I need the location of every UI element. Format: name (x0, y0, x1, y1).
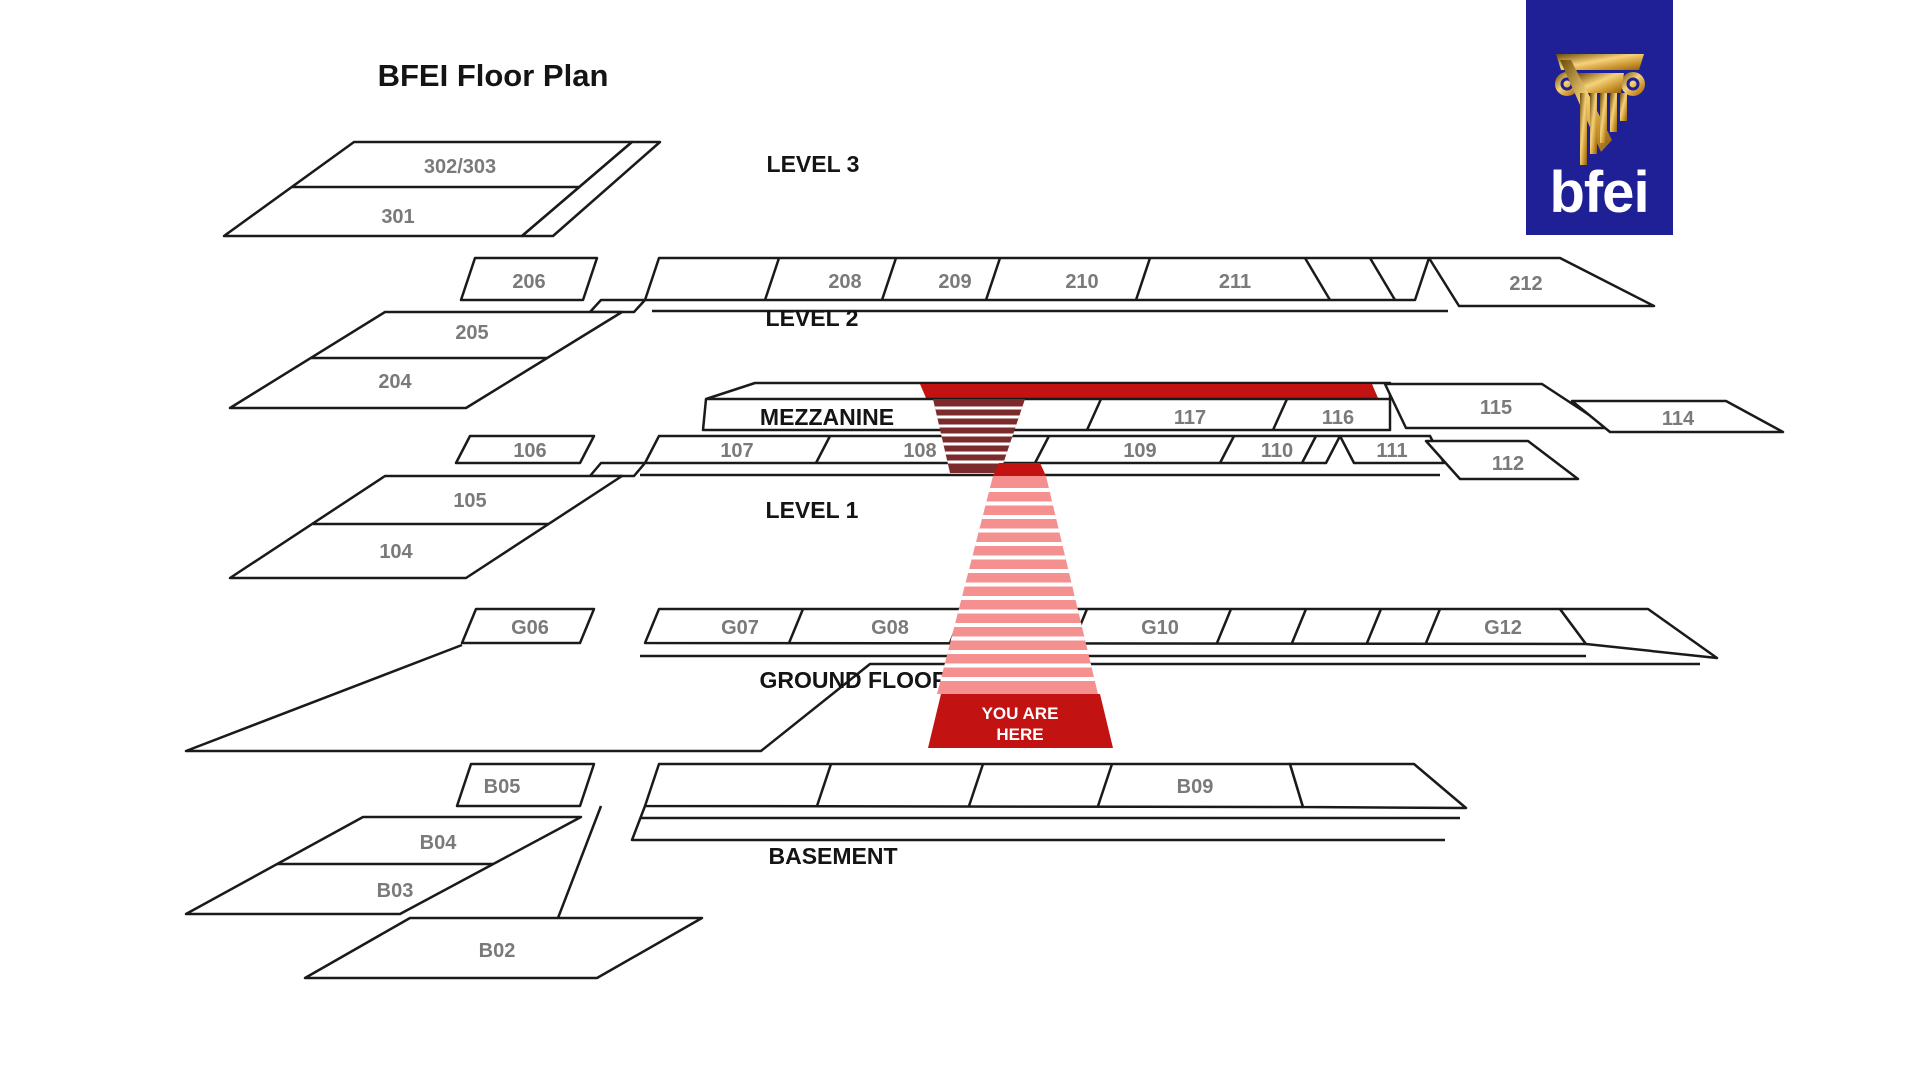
room-label-208: 208 (828, 271, 861, 293)
room-label-G10: G10 (1141, 617, 1179, 639)
basement-label: BASEMENT (768, 843, 897, 869)
room-label-204: 204 (378, 371, 412, 393)
room-label-B05: B05 (484, 776, 521, 798)
level2-label: LEVEL 2 (766, 305, 859, 331)
room-label-212: 212 (1509, 273, 1542, 295)
level-1-floor: 106 107 108 109 110 111 112 105 104 LEVE… (230, 436, 1578, 578)
mezzanine-red-corridor (920, 384, 1378, 398)
room-label-110: 110 (1261, 440, 1293, 462)
level-3-floor: 302/303 301 LEVEL 3 (224, 142, 859, 236)
ground-floor-label: GROUND FLOOR (759, 667, 948, 693)
room-label-B03: B03 (377, 880, 414, 902)
room-label-106: 106 (513, 440, 546, 462)
basement-floor: B05 B09 B04 B03 B02 BASEMENT (186, 764, 1466, 978)
room-label-111: 111 (1376, 440, 1407, 462)
room-label-209: 209 (938, 271, 971, 293)
room-label-112: 112 (1492, 453, 1524, 475)
room-label-115: 115 (1480, 397, 1512, 419)
room-label-B09: B09 (1177, 776, 1214, 798)
floor-plan-drawing: 302/303 301 LEVEL 3 206 208 209 210 211 … (0, 0, 1922, 1080)
room-B05 (457, 764, 594, 806)
ground-strip-tail (1560, 609, 1717, 658)
bfei-logo: bfei (1526, 0, 1673, 235)
level2-link-corridor (590, 300, 645, 312)
room-label-117: 117 (1174, 407, 1206, 429)
room-label-107: 107 (720, 440, 753, 462)
room-label-G12: G12 (1484, 617, 1522, 639)
level2-block (230, 312, 622, 408)
room-label-205: 205 (455, 322, 488, 344)
logo-wordmark: bfei (1549, 160, 1648, 225)
you-are-here-line2: HERE (996, 725, 1043, 744)
room-label-114: 114 (1662, 408, 1695, 430)
room-label-G07: G07 (721, 617, 759, 639)
room-label-108: 108 (903, 440, 936, 462)
basement-footprint-outline (632, 806, 1445, 840)
ground-strip (645, 609, 1586, 644)
level1-label: LEVEL 1 (766, 497, 859, 523)
stairs-landing (993, 463, 1046, 476)
room-label-301: 301 (381, 206, 414, 228)
room-label-G08: G08 (871, 617, 909, 639)
room-label-105: 105 (453, 490, 486, 512)
stairs-lower-steps (920, 490, 1110, 679)
mezzanine-label: MEZZANINE (760, 404, 894, 430)
floor-plan-canvas: 302/303 301 LEVEL 3 206 208 209 210 211 … (0, 0, 1922, 1080)
room-label-210: 210 (1065, 271, 1098, 293)
room-label-206: 206 (512, 271, 545, 293)
room-label-116: 116 (1322, 407, 1354, 429)
room-label-B02: B02 (479, 940, 516, 962)
level1-link-corridor (590, 463, 645, 476)
level1-block (230, 476, 622, 578)
level3-label: LEVEL 3 (767, 151, 860, 177)
room-label-211: 211 (1219, 271, 1251, 293)
page-title: BFEI Floor Plan (378, 58, 609, 93)
mezzanine-floor: MEZZANINE 117 116 115 114 (703, 383, 1783, 432)
you-are-here-line1: YOU ARE (982, 704, 1059, 723)
room-label-302-303: 302/303 (424, 156, 496, 178)
basement-strip-tail (1290, 764, 1466, 808)
room-label-104: 104 (379, 541, 413, 563)
level2-strip (645, 258, 1429, 300)
room-label-B04: B04 (420, 832, 458, 854)
room-label-G06: G06 (511, 617, 549, 639)
room-label-109: 109 (1123, 440, 1156, 462)
